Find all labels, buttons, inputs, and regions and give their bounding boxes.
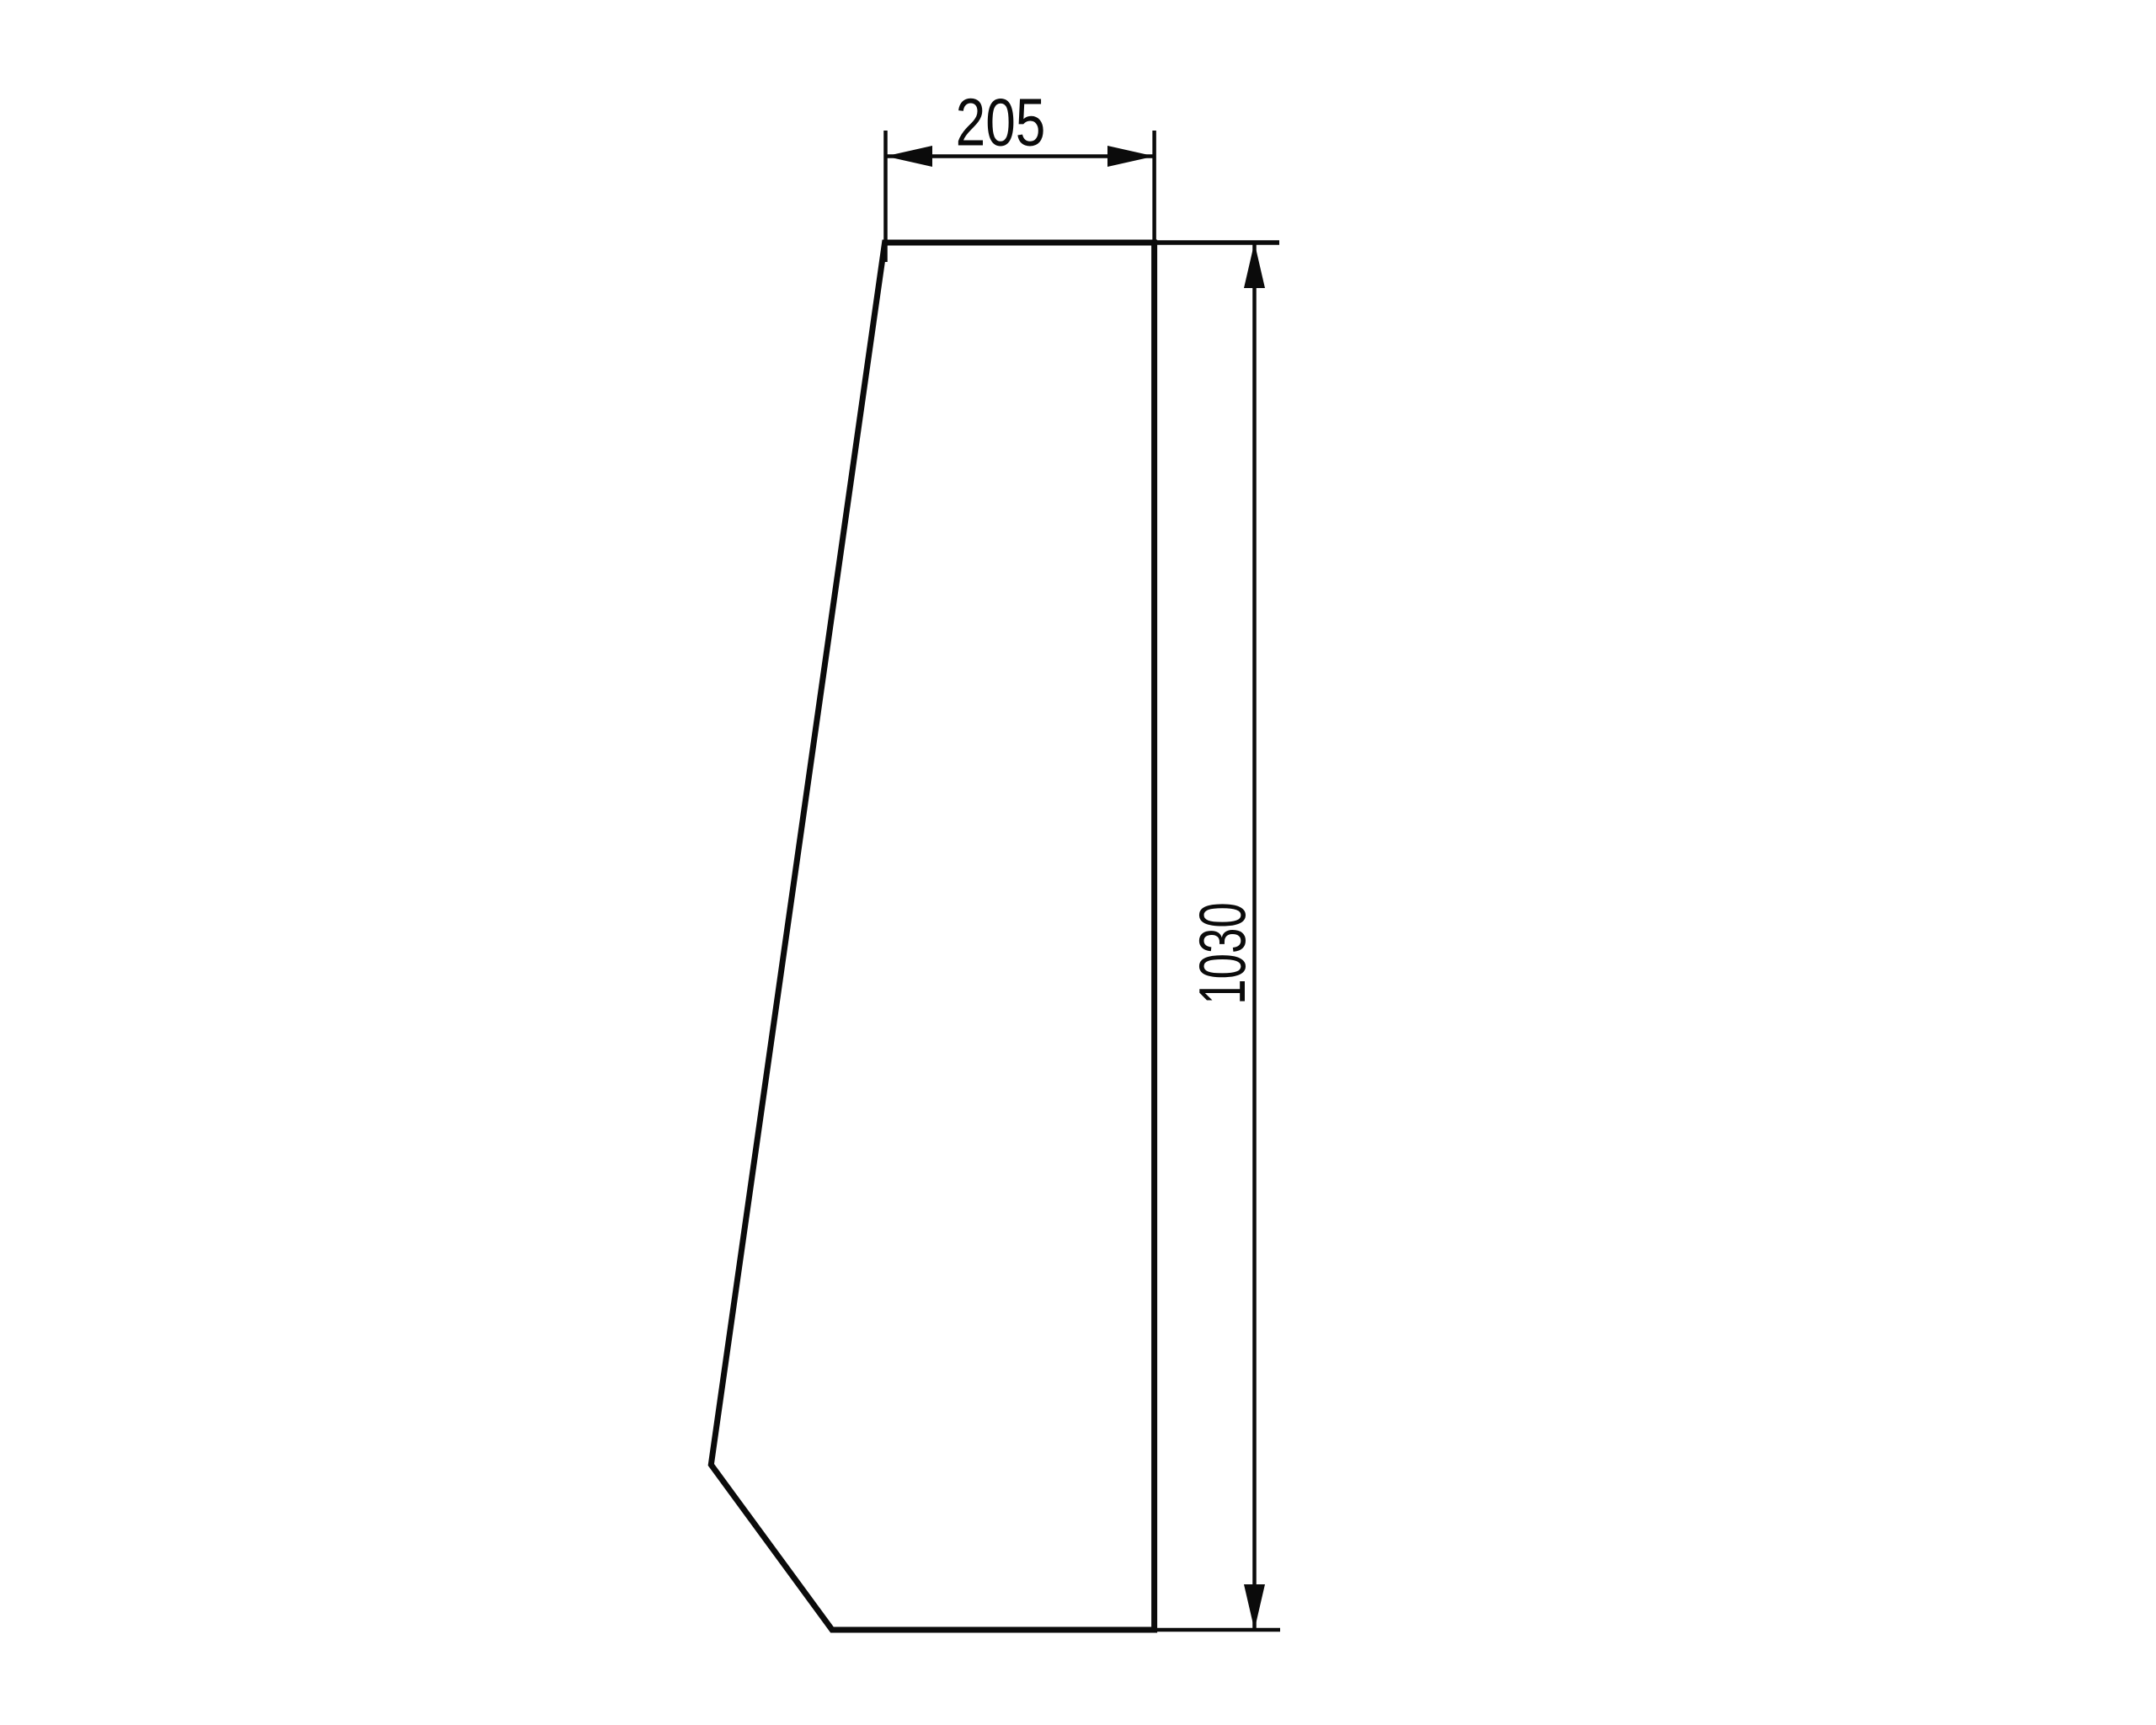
svg-text:205: 205: [956, 85, 1046, 160]
svg-text:1030: 1030: [1186, 902, 1259, 1004]
